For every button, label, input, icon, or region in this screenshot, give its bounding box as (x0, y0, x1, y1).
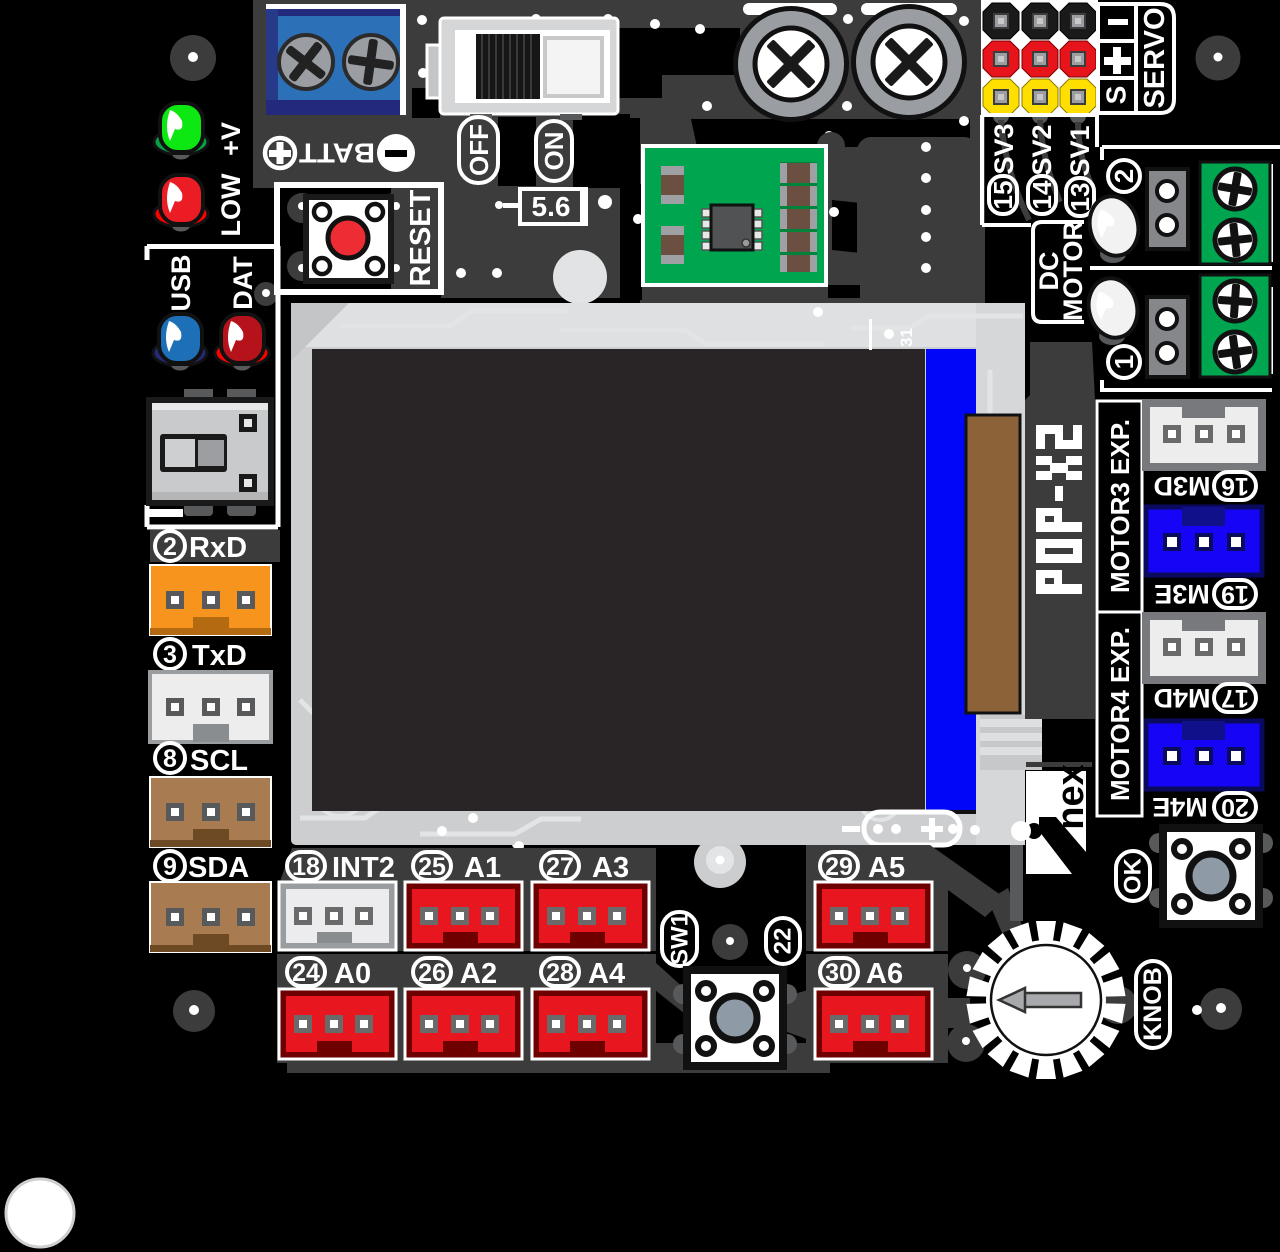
svg-text:SDA: SDA (188, 852, 249, 884)
svg-text:SCL: SCL (190, 745, 248, 777)
svg-text:24: 24 (292, 959, 320, 987)
svg-text:13: 13 (1065, 183, 1095, 212)
svg-text:M3E: M3E (1154, 579, 1210, 609)
svg-text:19: 19 (1221, 580, 1249, 608)
svg-text:A1: A1 (464, 852, 501, 884)
svg-text:SV2: SV2 (1027, 124, 1057, 175)
svg-text:USB: USB (166, 254, 196, 311)
svg-text:A4: A4 (588, 958, 625, 990)
svg-text:S: S (1101, 86, 1132, 105)
svg-text:MOTOR3 EXP.: MOTOR3 EXP. (1105, 419, 1135, 593)
svg-text:OK: OK (1120, 857, 1147, 894)
svg-text:1: 1 (1109, 355, 1139, 369)
svg-text:25: 25 (418, 853, 446, 881)
svg-text:KNOB: KNOB (1139, 967, 1167, 1041)
svg-text:ON: ON (539, 132, 569, 171)
svg-text:2: 2 (163, 533, 177, 561)
svg-text:RESET: RESET (405, 189, 437, 286)
svg-text:A0: A0 (334, 958, 371, 990)
svg-text:SV1: SV1 (1065, 125, 1095, 176)
svg-text:SERVO: SERVO (1139, 7, 1171, 108)
svg-text:14: 14 (1027, 180, 1057, 209)
svg-text:M4E: M4E (1152, 792, 1208, 822)
svg-text:RxD: RxD (189, 532, 247, 564)
svg-text:SW1: SW1 (667, 913, 694, 965)
svg-text:17: 17 (1221, 684, 1249, 712)
svg-text:A5: A5 (868, 852, 905, 884)
svg-text:20: 20 (1221, 793, 1249, 821)
svg-text:22: 22 (770, 928, 797, 955)
svg-text:M4D: M4D (1153, 683, 1210, 713)
svg-text:2: 2 (1109, 169, 1139, 183)
svg-text:27: 27 (546, 853, 574, 881)
svg-text:MOTOR: MOTOR (1058, 221, 1088, 321)
svg-text:M3D: M3D (1153, 471, 1210, 501)
svg-text:5.6: 5.6 (532, 191, 571, 222)
svg-text:29: 29 (825, 853, 853, 881)
svg-text:A6: A6 (866, 958, 903, 990)
svg-text:16: 16 (1221, 472, 1249, 500)
svg-text:+V: +V (216, 122, 246, 156)
svg-text:26: 26 (418, 959, 446, 987)
svg-text:OFF: OFF (464, 124, 494, 176)
svg-text:18: 18 (292, 853, 320, 881)
svg-text:28: 28 (546, 959, 574, 987)
svg-text:SV3: SV3 (989, 123, 1019, 174)
svg-text:INT2: INT2 (332, 852, 395, 884)
svg-text:3: 3 (163, 641, 177, 669)
svg-text:A3: A3 (592, 852, 629, 884)
svg-text:31: 31 (897, 328, 916, 347)
svg-text:9: 9 (163, 853, 177, 881)
svg-text:TxD: TxD (192, 640, 247, 672)
svg-text:BATT: BATT (299, 138, 375, 169)
svg-text:DAT: DAT (228, 256, 258, 310)
svg-text:30: 30 (825, 959, 853, 987)
svg-text:8: 8 (163, 745, 177, 773)
svg-text:15: 15 (988, 181, 1018, 210)
svg-text:LOW: LOW (216, 173, 246, 236)
svg-text:MOTOR4 EXP.: MOTOR4 EXP. (1105, 627, 1135, 801)
svg-text:A2: A2 (460, 958, 497, 990)
